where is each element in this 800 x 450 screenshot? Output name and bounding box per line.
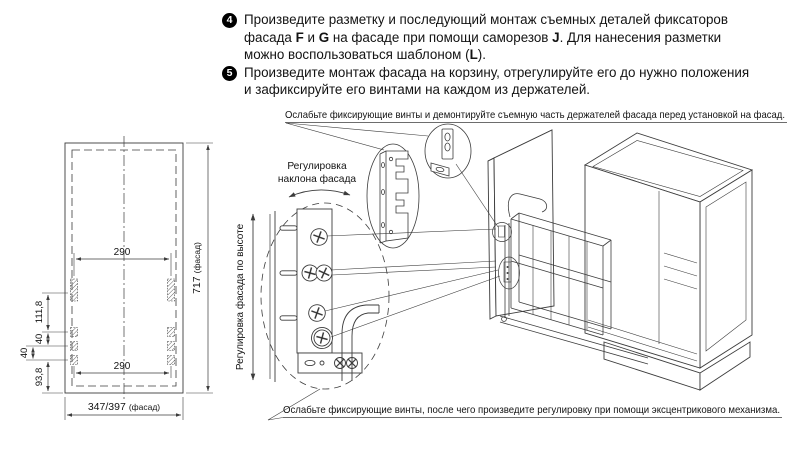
step-5-text: Произведите монтаж фасада на корзину, от… — [244, 64, 749, 99]
cabinet-isometric-drawing — [488, 130, 752, 390]
dim-width-347-397: 347/397(фасад) — [88, 401, 160, 413]
instructions-block: 4 Произведите разметку и последующий мон… — [222, 11, 797, 99]
height-adjustment-label: Регулировка фасада по высоте — [234, 223, 246, 370]
dim-top-290: 290 — [114, 247, 131, 258]
bracket-g-detail — [425, 124, 471, 178]
step-5-number-badge: 5 — [222, 66, 237, 81]
assembly-screw-1 — [335, 358, 346, 369]
dim-93-8: 93,8 — [34, 368, 45, 387]
instruction-step-5: 5 Произведите монтаж фасада на корзину, … — [222, 64, 797, 99]
tilt-adjustment-label: Регулировка наклона фасада — [278, 161, 356, 185]
dowel-pins — [280, 226, 297, 320]
callout-top-text: Ослабьте фиксирующие винты и демонтируйт… — [285, 109, 785, 121]
step-4-number-badge: 4 — [222, 13, 237, 28]
holder-adjustment-detail: Регулировка фасада по высоте Регулировка… — [234, 161, 389, 389]
dim-height-717: 717(фасад) — [191, 242, 203, 294]
dimension-extension-lines — [26, 143, 213, 420]
step-4-text: Произведите разметку и последующий монта… — [244, 11, 728, 64]
dim-111-8: 111,8 — [34, 301, 45, 323]
dim-40-b: 40 — [19, 348, 30, 359]
instruction-step-4: 4 Произведите разметку и последующий мон… — [222, 11, 797, 64]
dim-40-a: 40 — [34, 334, 45, 345]
dim-bottom-290: 290 — [114, 361, 131, 372]
dimension-lines — [33, 145, 208, 415]
cabinet-body — [585, 133, 752, 368]
svg-text:Регулировка: Регулировка — [287, 161, 347, 172]
svg-text:наклона фасада: наклона фасада — [278, 173, 356, 185]
facade-panel — [488, 130, 554, 319]
manual-page: 4 Произведите разметку и последующий мон… — [0, 0, 800, 450]
facade-layout-drawing: 290 290 717(фасад) 347/397(фасад) 111,8 … — [19, 136, 213, 420]
fixator-marks — [71, 279, 175, 365]
dimension-labels: 290 290 717(фасад) 347/397(фасад) 111,8 … — [19, 242, 203, 413]
tilt-adjustment-arrow — [289, 190, 350, 197]
callout-bottom-text: Ослабьте фиксирующие винты, после чего п… — [283, 404, 780, 416]
